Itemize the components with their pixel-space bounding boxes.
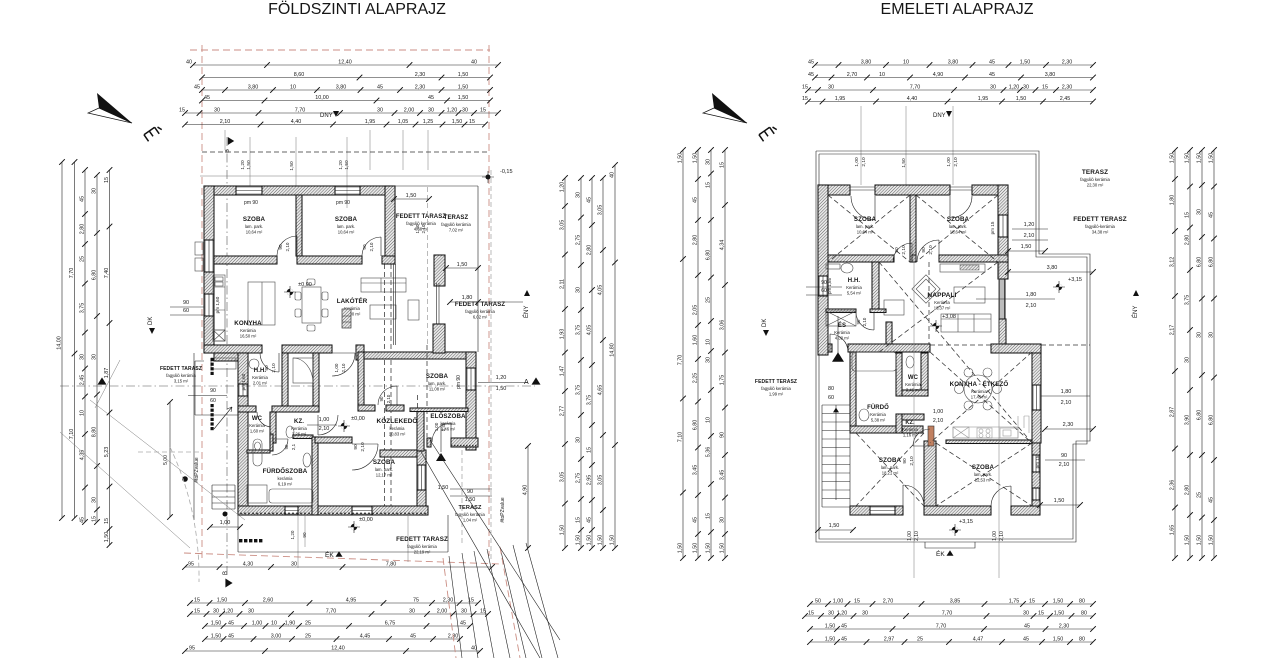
svg-text:34,38 m²: 34,38 m² bbox=[1092, 230, 1109, 235]
svg-text:1,20: 1,20 bbox=[1009, 85, 1020, 91]
svg-text:90: 90 bbox=[719, 432, 725, 438]
svg-text:lam. park.: lam. park. bbox=[428, 381, 446, 386]
svg-text:25: 25 bbox=[305, 621, 311, 627]
svg-text:SZOBA: SZOBA bbox=[972, 464, 995, 471]
svg-text:lam. park.: lam. park. bbox=[881, 465, 899, 470]
svg-text:7,10: 7,10 bbox=[69, 429, 75, 440]
svg-text:3,75: 3,75 bbox=[575, 325, 581, 336]
svg-text:30: 30 bbox=[213, 609, 219, 615]
svg-text:6,80: 6,80 bbox=[1196, 410, 1202, 421]
svg-text:1,87: 1,87 bbox=[104, 368, 110, 379]
svg-text:1,50: 1,50 bbox=[1020, 60, 1031, 66]
svg-text:2,36: 2,36 bbox=[1169, 480, 1175, 491]
svg-text:1,20: 1,20 bbox=[447, 108, 458, 114]
svg-text:kerámia: kerámia bbox=[441, 421, 457, 426]
svg-text:90: 90 bbox=[467, 489, 473, 495]
svg-text:4,34: 4,34 bbox=[719, 240, 725, 251]
svg-text:30: 30 bbox=[291, 562, 297, 568]
svg-text:90: 90 bbox=[183, 300, 189, 306]
svg-text:1,20: 1,20 bbox=[223, 609, 234, 615]
svg-text:1,00: 1,00 bbox=[992, 531, 998, 541]
svg-text:15: 15 bbox=[1029, 599, 1035, 605]
svg-text:2,17: 2,17 bbox=[1169, 325, 1175, 336]
svg-text:2,10: 2,10 bbox=[914, 531, 920, 541]
svg-text:2,10: 2,10 bbox=[1026, 303, 1037, 309]
svg-text:1,50: 1,50 bbox=[1169, 153, 1175, 164]
svg-text:±0,00: ±0,00 bbox=[298, 282, 312, 288]
svg-text:25: 25 bbox=[705, 297, 711, 303]
svg-text:7,80: 7,80 bbox=[386, 562, 397, 568]
svg-text:80: 80 bbox=[1079, 599, 1085, 605]
svg-text:WC: WC bbox=[252, 416, 263, 422]
svg-text:2,80: 2,80 bbox=[692, 235, 698, 246]
svg-text:45: 45 bbox=[410, 634, 416, 640]
svg-text:fagyáló kerámia: fagyáló kerámia bbox=[441, 222, 471, 227]
svg-text:lam. park.: lam. park. bbox=[337, 224, 355, 229]
svg-text:1,50: 1,50 bbox=[677, 153, 683, 164]
svg-text:3,80: 3,80 bbox=[336, 85, 347, 91]
svg-text:Kerámia: Kerámia bbox=[291, 426, 307, 431]
svg-text:fagyáló kerámia: fagyáló kerámia bbox=[1080, 177, 1110, 182]
svg-text:40: 40 bbox=[471, 60, 477, 66]
svg-text:40: 40 bbox=[609, 172, 615, 178]
svg-text:B: B bbox=[223, 571, 229, 575]
svg-text:2,30: 2,30 bbox=[1063, 422, 1074, 428]
svg-text:1,50: 1,50 bbox=[457, 262, 468, 268]
svg-text:10: 10 bbox=[903, 60, 909, 66]
svg-text:2,10: 2,10 bbox=[909, 456, 915, 466]
svg-text:1,16 m²: 1,16 m² bbox=[903, 433, 918, 438]
svg-text:1,50: 1,50 bbox=[692, 543, 698, 554]
svg-text:3,80: 3,80 bbox=[1047, 265, 1058, 271]
svg-text:2,46 m²: 2,46 m² bbox=[441, 427, 456, 432]
svg-text:1,75: 1,75 bbox=[1009, 599, 1020, 605]
svg-text:1,00: 1,00 bbox=[907, 531, 913, 541]
svg-text:7,70: 7,70 bbox=[942, 611, 953, 617]
svg-text:17,45 m²: 17,45 m² bbox=[971, 395, 988, 400]
svg-text:2,97: 2,97 bbox=[884, 637, 895, 643]
svg-text:FEDETT TERASZ: FEDETT TERASZ bbox=[755, 379, 797, 385]
svg-text:90: 90 bbox=[1061, 453, 1067, 459]
svg-text:LAKÓTÉR: LAKÓTÉR bbox=[337, 297, 368, 305]
svg-text:#toPZvalue: #toPZvalue bbox=[500, 497, 506, 523]
svg-text:Kerámia: Kerámia bbox=[934, 300, 950, 305]
svg-text:2,11: 2,11 bbox=[559, 279, 565, 289]
svg-text:2,80: 2,80 bbox=[1184, 235, 1190, 246]
svg-text:1,93: 1,93 bbox=[559, 329, 565, 340]
svg-text:1,00: 1,00 bbox=[854, 157, 860, 167]
svg-text:15: 15 bbox=[1038, 611, 1044, 617]
svg-text:SZOBA: SZOBA bbox=[879, 457, 902, 464]
svg-text:15: 15 bbox=[91, 516, 97, 522]
svg-text:90: 90 bbox=[353, 444, 359, 450]
svg-text:30: 30 bbox=[91, 497, 97, 503]
svg-text:18,37 m²: 18,37 m² bbox=[934, 306, 951, 311]
svg-text:15: 15 bbox=[705, 513, 711, 519]
svg-text:45: 45 bbox=[989, 72, 995, 78]
svg-text:15: 15 bbox=[469, 119, 475, 125]
svg-text:1,80: 1,80 bbox=[1169, 195, 1175, 206]
svg-text:4,40: 4,40 bbox=[291, 119, 302, 125]
svg-text:7,70: 7,70 bbox=[677, 355, 683, 366]
svg-text:1,00: 1,00 bbox=[946, 157, 952, 167]
svg-text:80: 80 bbox=[828, 386, 834, 392]
svg-text:1,80: 1,80 bbox=[1026, 292, 1037, 298]
svg-text:45: 45 bbox=[228, 621, 234, 627]
svg-text:H.H.: H.H. bbox=[848, 278, 861, 284]
svg-text:15: 15 bbox=[854, 599, 860, 605]
svg-text:15: 15 bbox=[1042, 85, 1048, 91]
svg-text:1,20: 1,20 bbox=[496, 375, 507, 381]
svg-text:2,10: 2,10 bbox=[341, 363, 346, 372]
svg-text:60: 60 bbox=[210, 398, 216, 404]
svg-text:45: 45 bbox=[428, 95, 434, 101]
svg-text:10,64 m²: 10,64 m² bbox=[338, 230, 355, 235]
svg-text:15: 15 bbox=[194, 598, 200, 604]
svg-text:10: 10 bbox=[271, 621, 277, 627]
svg-text:lam. park.: lam. park. bbox=[375, 467, 393, 472]
svg-text:15: 15 bbox=[802, 96, 808, 102]
svg-text:3,45: 3,45 bbox=[719, 470, 725, 481]
svg-text:1,95: 1,95 bbox=[365, 119, 376, 125]
svg-text:30: 30 bbox=[1184, 357, 1190, 363]
svg-text:15: 15 bbox=[104, 177, 110, 183]
svg-text:3,45: 3,45 bbox=[692, 465, 698, 476]
svg-text:6,80: 6,80 bbox=[705, 250, 711, 261]
svg-text:25: 25 bbox=[79, 256, 85, 262]
svg-text:Kerámia: Kerámia bbox=[846, 285, 862, 290]
svg-text:2,30: 2,30 bbox=[415, 72, 426, 78]
svg-text:45: 45 bbox=[194, 85, 200, 91]
svg-text:2,10: 2,10 bbox=[933, 418, 943, 424]
svg-text:30: 30 bbox=[575, 437, 581, 443]
svg-text:WC: WC bbox=[908, 375, 919, 381]
svg-text:15: 15 bbox=[179, 108, 185, 114]
svg-text:1,50: 1,50 bbox=[719, 543, 725, 554]
svg-text:1,50: 1,50 bbox=[406, 193, 417, 199]
svg-text:1,00: 1,00 bbox=[252, 621, 263, 627]
svg-text:11,08 m²: 11,08 m² bbox=[429, 387, 446, 392]
svg-text:2,10: 2,10 bbox=[386, 394, 391, 403]
svg-text:2,80: 2,80 bbox=[586, 245, 592, 256]
svg-text:1,50: 1,50 bbox=[1016, 96, 1027, 102]
svg-text:DNY: DNY bbox=[320, 113, 333, 119]
svg-text:2,10: 2,10 bbox=[369, 242, 374, 251]
svg-text:12,53 m²: 12,53 m² bbox=[975, 478, 992, 483]
svg-text:2,10: 2,10 bbox=[285, 242, 290, 251]
svg-text:3,75: 3,75 bbox=[1184, 295, 1190, 306]
svg-text:7,70: 7,70 bbox=[910, 85, 921, 91]
svg-text:3,05: 3,05 bbox=[597, 475, 603, 486]
svg-text:50: 50 bbox=[815, 599, 821, 605]
svg-text:7,70: 7,70 bbox=[936, 624, 947, 630]
svg-text:lam. park.: lam. park. bbox=[856, 224, 874, 229]
svg-text:NAPPALI: NAPPALI bbox=[927, 292, 956, 299]
svg-text:4,40: 4,40 bbox=[907, 96, 918, 102]
svg-text:1,20: 1,20 bbox=[837, 611, 848, 617]
svg-text:45: 45 bbox=[586, 517, 592, 523]
svg-text:1,25: 1,25 bbox=[423, 119, 434, 125]
svg-text:14,80: 14,80 bbox=[609, 343, 615, 357]
svg-text:90: 90 bbox=[921, 247, 927, 253]
svg-text:FEDETT TARASZ: FEDETT TARASZ bbox=[396, 214, 446, 220]
svg-text:KONYHA - ÉTKEZŐ: KONYHA - ÉTKEZŐ bbox=[950, 380, 1009, 388]
svg-text:30: 30 bbox=[428, 108, 434, 114]
svg-text:6,80: 6,80 bbox=[91, 270, 97, 281]
svg-text:Kerámia: Kerámia bbox=[252, 375, 268, 380]
svg-text:2,10: 2,10 bbox=[1024, 233, 1035, 239]
svg-text:45: 45 bbox=[79, 517, 85, 523]
svg-text:1,47: 1,47 bbox=[559, 366, 565, 377]
svg-text:3,85: 3,85 bbox=[950, 599, 961, 605]
svg-text:1,50: 1,50 bbox=[677, 543, 683, 554]
svg-text:1,20: 1,20 bbox=[240, 160, 246, 170]
svg-text:4,05: 4,05 bbox=[586, 325, 592, 336]
svg-text:30: 30 bbox=[1196, 332, 1202, 338]
svg-text:7,02 m²: 7,02 m² bbox=[449, 228, 464, 233]
svg-text:5,00: 5,00 bbox=[163, 455, 169, 465]
svg-text:1,50: 1,50 bbox=[829, 523, 840, 529]
svg-text:30: 30 bbox=[705, 357, 711, 363]
svg-text:14,00: 14,00 bbox=[56, 336, 62, 350]
svg-text:2,10: 2,10 bbox=[928, 245, 934, 255]
svg-text:-0,15: -0,15 bbox=[500, 169, 513, 175]
svg-text:1,20: 1,20 bbox=[1024, 222, 1035, 228]
svg-text:1,50: 1,50 bbox=[458, 72, 469, 78]
svg-text:FEDETT TERASZ: FEDETT TERASZ bbox=[1073, 216, 1127, 223]
svg-text:4,65: 4,65 bbox=[597, 385, 603, 396]
svg-text:30: 30 bbox=[248, 609, 254, 615]
svg-text:5,23: 5,23 bbox=[104, 447, 110, 458]
svg-text:30: 30 bbox=[461, 609, 467, 615]
svg-text:45: 45 bbox=[1208, 497, 1214, 503]
svg-text:4,05: 4,05 bbox=[597, 285, 603, 296]
svg-text:1,90: 1,90 bbox=[285, 621, 296, 627]
svg-text:2,60: 2,60 bbox=[263, 598, 274, 604]
svg-text:30: 30 bbox=[828, 611, 834, 617]
svg-text:kerámia: kerámia bbox=[278, 476, 294, 481]
svg-text:45: 45 bbox=[460, 621, 466, 627]
svg-text:15: 15 bbox=[480, 108, 486, 114]
svg-text:1,50: 1,50 bbox=[825, 637, 836, 643]
svg-text:6,19 m²: 6,19 m² bbox=[278, 482, 293, 487]
svg-text:90: 90 bbox=[379, 396, 384, 401]
svg-text:1,04 m²: 1,04 m² bbox=[463, 518, 478, 523]
svg-text:12,40: 12,40 bbox=[338, 60, 352, 66]
svg-text:6,80: 6,80 bbox=[1208, 257, 1214, 268]
svg-text:3,46 m²: 3,46 m² bbox=[906, 388, 921, 393]
svg-text:30: 30 bbox=[79, 354, 85, 360]
svg-text:2,10: 2,10 bbox=[360, 442, 366, 452]
svg-text:80: 80 bbox=[1079, 637, 1085, 643]
svg-text:Kerámia: Kerámia bbox=[240, 328, 256, 333]
svg-text:1,50: 1,50 bbox=[496, 386, 507, 392]
svg-text:2,70: 2,70 bbox=[847, 72, 858, 78]
svg-text:#toPZvalue: #toPZvalue bbox=[194, 457, 200, 483]
svg-text:1,00: 1,00 bbox=[933, 409, 943, 415]
svg-text:2,10: 2,10 bbox=[861, 157, 867, 167]
svg-text:45: 45 bbox=[228, 634, 234, 640]
svg-text:45: 45 bbox=[692, 197, 698, 203]
svg-text:4,30: 4,30 bbox=[243, 562, 254, 568]
svg-text:95: 95 bbox=[189, 646, 195, 652]
svg-text:Kerámia: Kerámia bbox=[249, 423, 265, 428]
svg-text:FÜRDŐSZOBA: FÜRDŐSZOBA bbox=[263, 468, 308, 475]
svg-text:pm 15: pm 15 bbox=[990, 221, 995, 234]
svg-text:±0,00: ±0,00 bbox=[359, 517, 373, 523]
svg-text:2,10: 2,10 bbox=[862, 317, 867, 326]
svg-text:1,50: 1,50 bbox=[1196, 535, 1202, 546]
svg-text:3,05: 3,05 bbox=[559, 220, 565, 231]
svg-text:1,50: 1,50 bbox=[1021, 244, 1032, 250]
svg-text:1,50: 1,50 bbox=[609, 535, 615, 546]
svg-text:45: 45 bbox=[204, 95, 210, 101]
svg-text:fagyáló kerámia: fagyáló kerámia bbox=[761, 386, 791, 391]
svg-text:2,10: 2,10 bbox=[953, 157, 959, 167]
svg-text:Kerámia: Kerámia bbox=[905, 382, 921, 387]
svg-text:SZOBA: SZOBA bbox=[426, 373, 449, 380]
svg-text:6,80: 6,80 bbox=[1208, 415, 1214, 426]
svg-text:3,05: 3,05 bbox=[559, 472, 565, 483]
svg-text:ELŐSZOBA: ELŐSZOBA bbox=[430, 413, 466, 420]
svg-text:60: 60 bbox=[828, 395, 834, 401]
svg-text:DNY: DNY bbox=[933, 113, 946, 119]
svg-text:3,90: 3,90 bbox=[1184, 415, 1190, 426]
svg-text:TERASZ: TERASZ bbox=[444, 215, 469, 221]
svg-text:3,05: 3,05 bbox=[597, 205, 603, 216]
svg-text:2,10: 2,10 bbox=[319, 426, 330, 432]
svg-text:1,00: 1,00 bbox=[833, 599, 844, 605]
svg-text:7,10: 7,10 bbox=[677, 432, 683, 443]
svg-text:±0,00: ±0,00 bbox=[351, 416, 365, 422]
svg-text:25: 25 bbox=[1196, 492, 1202, 498]
svg-text:30: 30 bbox=[828, 85, 834, 91]
svg-text:2,30: 2,30 bbox=[1062, 60, 1073, 66]
svg-text:30: 30 bbox=[1023, 611, 1029, 617]
svg-text:5,54 m²: 5,54 m² bbox=[847, 291, 862, 296]
svg-text:ÉK: ÉK bbox=[936, 549, 945, 558]
svg-text:2,87: 2,87 bbox=[1169, 407, 1175, 418]
svg-text:10: 10 bbox=[79, 410, 85, 416]
svg-text:45: 45 bbox=[1024, 624, 1030, 630]
svg-text:2,10: 2,10 bbox=[999, 531, 1005, 541]
svg-text:45: 45 bbox=[692, 517, 698, 523]
svg-text:30: 30 bbox=[575, 192, 581, 198]
svg-text:1,00: 1,00 bbox=[434, 422, 439, 431]
svg-text:45: 45 bbox=[1023, 637, 1029, 643]
svg-text:30: 30 bbox=[1208, 332, 1214, 338]
svg-text:45: 45 bbox=[989, 60, 995, 66]
svg-text:TERASZ: TERASZ bbox=[1082, 169, 1108, 176]
svg-text:1,50: 1,50 bbox=[1053, 599, 1064, 605]
svg-text:fagyáló-kerámia: fagyáló-kerámia bbox=[1085, 224, 1115, 229]
svg-text:3,06: 3,06 bbox=[719, 320, 725, 331]
svg-text:6,80: 6,80 bbox=[692, 420, 698, 431]
svg-text:1,20: 1,20 bbox=[290, 530, 295, 539]
svg-text:ÉNY: ÉNY bbox=[523, 306, 530, 318]
svg-text:2,75: 2,75 bbox=[575, 473, 581, 484]
svg-text:lam. park.: lam. park. bbox=[245, 224, 263, 229]
svg-text:6,02 m²: 6,02 m² bbox=[473, 315, 488, 320]
svg-text:30: 30 bbox=[377, 108, 383, 114]
svg-text:3,00: 3,00 bbox=[271, 634, 282, 640]
svg-text:2,45: 2,45 bbox=[79, 375, 85, 386]
svg-text:90: 90 bbox=[902, 458, 908, 464]
svg-text:1,50: 1,50 bbox=[1196, 153, 1202, 164]
svg-text:4,90: 4,90 bbox=[522, 485, 528, 496]
svg-text:FEDETT TARASZ: FEDETT TARASZ bbox=[396, 536, 448, 543]
svg-text:pm 1,60: pm 1,60 bbox=[241, 373, 246, 390]
svg-text:45: 45 bbox=[808, 72, 814, 78]
svg-text:pm 1,65: pm 1,65 bbox=[827, 278, 832, 294]
svg-text:4,45: 4,45 bbox=[360, 634, 371, 640]
svg-text:FEDETT TARASZ: FEDETT TARASZ bbox=[455, 302, 505, 308]
svg-text:1,75: 1,75 bbox=[719, 375, 725, 386]
svg-text:1,50: 1,50 bbox=[1184, 535, 1190, 546]
svg-text:2,77: 2,77 bbox=[559, 406, 565, 417]
svg-text:6,75: 6,75 bbox=[385, 621, 396, 627]
svg-text:pm 90: pm 90 bbox=[336, 200, 350, 206]
svg-text:40: 40 bbox=[186, 60, 192, 66]
svg-text:8,80: 8,80 bbox=[91, 427, 97, 438]
svg-text:15: 15 bbox=[808, 611, 814, 617]
svg-text:90: 90 bbox=[821, 280, 827, 286]
svg-text:15: 15 bbox=[575, 517, 581, 523]
svg-text:45: 45 bbox=[586, 197, 592, 203]
svg-text:2,80: 2,80 bbox=[79, 224, 85, 235]
svg-text:30: 30 bbox=[575, 287, 581, 293]
svg-text:1,50: 1,50 bbox=[211, 621, 222, 627]
svg-text:80: 80 bbox=[1081, 611, 1087, 617]
svg-text:30: 30 bbox=[862, 611, 868, 617]
svg-text:1,50: 1,50 bbox=[1208, 153, 1214, 164]
svg-text:45: 45 bbox=[79, 196, 85, 202]
svg-text:4,90: 4,90 bbox=[933, 72, 944, 78]
svg-text:+3,08: +3,08 bbox=[942, 314, 956, 320]
svg-text:DK: DK bbox=[148, 317, 154, 325]
svg-text:10,64 m²: 10,64 m² bbox=[857, 230, 874, 235]
svg-text:2,80: 2,80 bbox=[1184, 485, 1190, 496]
svg-text:1,50: 1,50 bbox=[825, 624, 836, 630]
svg-text:2,01 m²: 2,01 m² bbox=[253, 381, 268, 386]
svg-text:1,00: 1,00 bbox=[220, 520, 231, 526]
svg-text:30: 30 bbox=[1023, 85, 1029, 91]
svg-text:1,80: 1,80 bbox=[415, 224, 420, 233]
svg-text:4,47: 4,47 bbox=[973, 637, 984, 643]
svg-text:KZ.: KZ. bbox=[294, 419, 304, 425]
svg-text:5,36: 5,36 bbox=[705, 447, 711, 458]
svg-text:90: 90 bbox=[302, 532, 307, 538]
svg-text:3,80: 3,80 bbox=[1045, 72, 1056, 78]
svg-text:1,50: 1,50 bbox=[458, 95, 469, 101]
svg-text:7,70: 7,70 bbox=[295, 108, 306, 114]
svg-text:30: 30 bbox=[214, 108, 220, 114]
svg-text:1,50: 1,50 bbox=[597, 535, 603, 546]
svg-text:45: 45 bbox=[841, 624, 847, 630]
svg-text:1,50: 1,50 bbox=[559, 525, 565, 536]
svg-text:10,00: 10,00 bbox=[315, 95, 329, 101]
svg-text:30: 30 bbox=[1196, 209, 1202, 215]
svg-text:2,30: 2,30 bbox=[443, 598, 454, 604]
svg-text:10: 10 bbox=[879, 72, 885, 78]
svg-text:10,64 m²: 10,64 m² bbox=[950, 230, 967, 235]
svg-text:7,70: 7,70 bbox=[326, 609, 337, 615]
svg-text:Kerámia: Kerámia bbox=[902, 427, 918, 432]
svg-text:1,60 m²: 1,60 m² bbox=[250, 429, 265, 434]
svg-text:ÉK: ÉK bbox=[325, 550, 334, 559]
svg-text:15: 15 bbox=[705, 182, 711, 188]
svg-text:2,1: 2,1 bbox=[291, 443, 296, 450]
